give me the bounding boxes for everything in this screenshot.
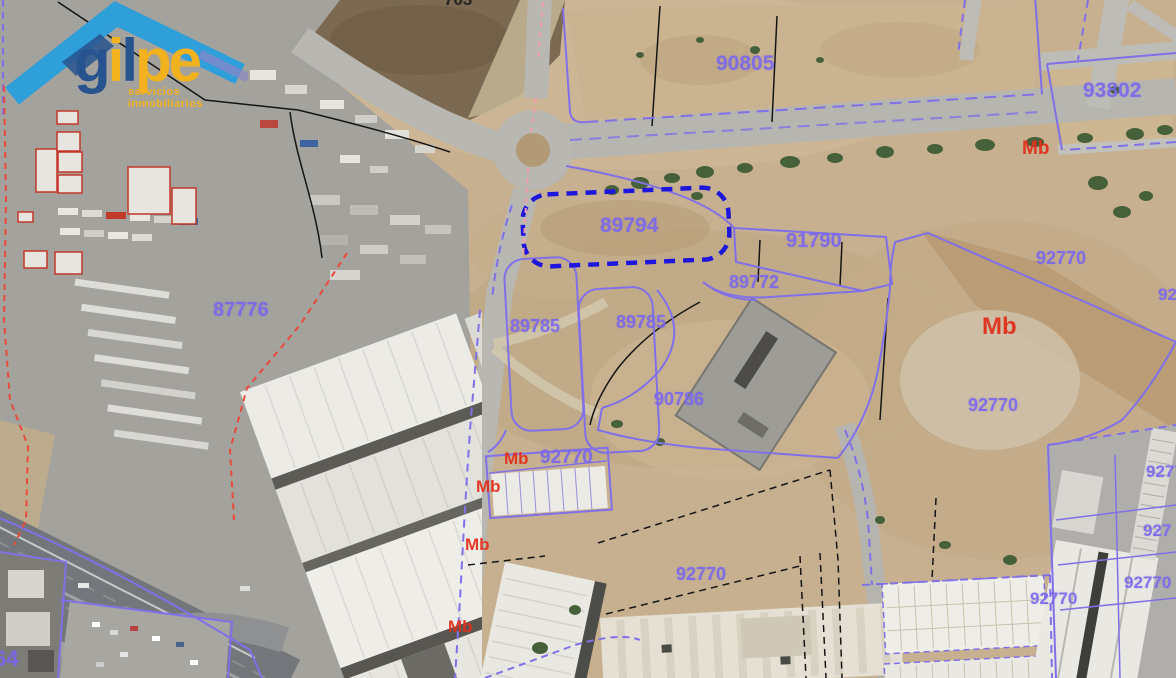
logo-letter: g <box>74 27 108 94</box>
cadastral-aerial-map: 7039080593802Mb8979491790897729277092877… <box>0 0 1176 678</box>
logo-letter: i <box>108 27 122 94</box>
gilpe-logo: gilpe servicios inmobiliarios <box>4 0 248 112</box>
logo-letter: l <box>121 27 135 94</box>
storage-units <box>882 576 1047 654</box>
logo-wordmark: gilpe <box>74 26 199 95</box>
logo-tagline: servicios inmobiliarios <box>128 86 248 110</box>
logo-letter: e <box>169 27 199 94</box>
logo-letter: p <box>135 27 169 94</box>
